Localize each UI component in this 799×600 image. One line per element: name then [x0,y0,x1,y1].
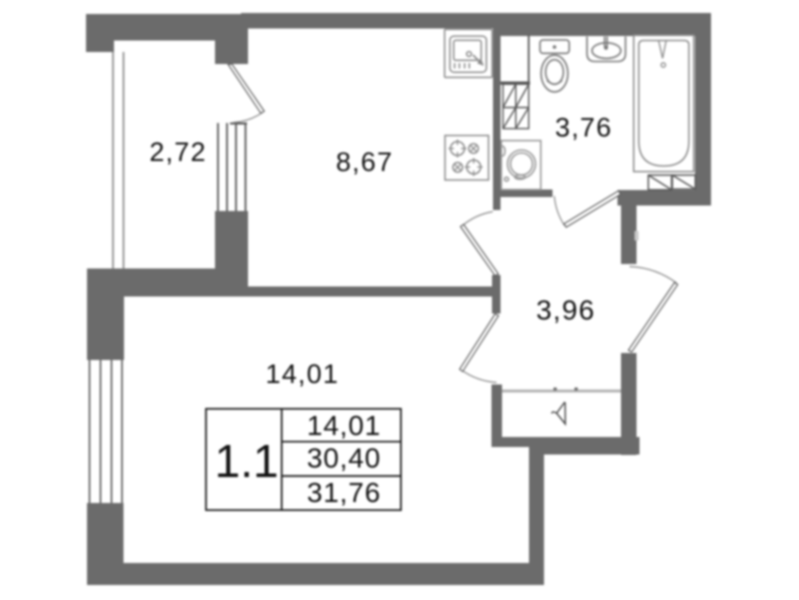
svg-text:30,40: 30,40 [307,443,381,474]
svg-text:14,01: 14,01 [266,359,340,389]
svg-text:2,72: 2,72 [149,137,206,167]
svg-text:1.1: 1.1 [215,435,279,487]
svg-text:14,01: 14,01 [307,410,381,441]
svg-text:3,96: 3,96 [536,295,595,326]
svg-text:8,67: 8,67 [336,147,393,177]
svg-text:3,76: 3,76 [555,112,612,142]
svg-text:31,76: 31,76 [307,477,381,508]
